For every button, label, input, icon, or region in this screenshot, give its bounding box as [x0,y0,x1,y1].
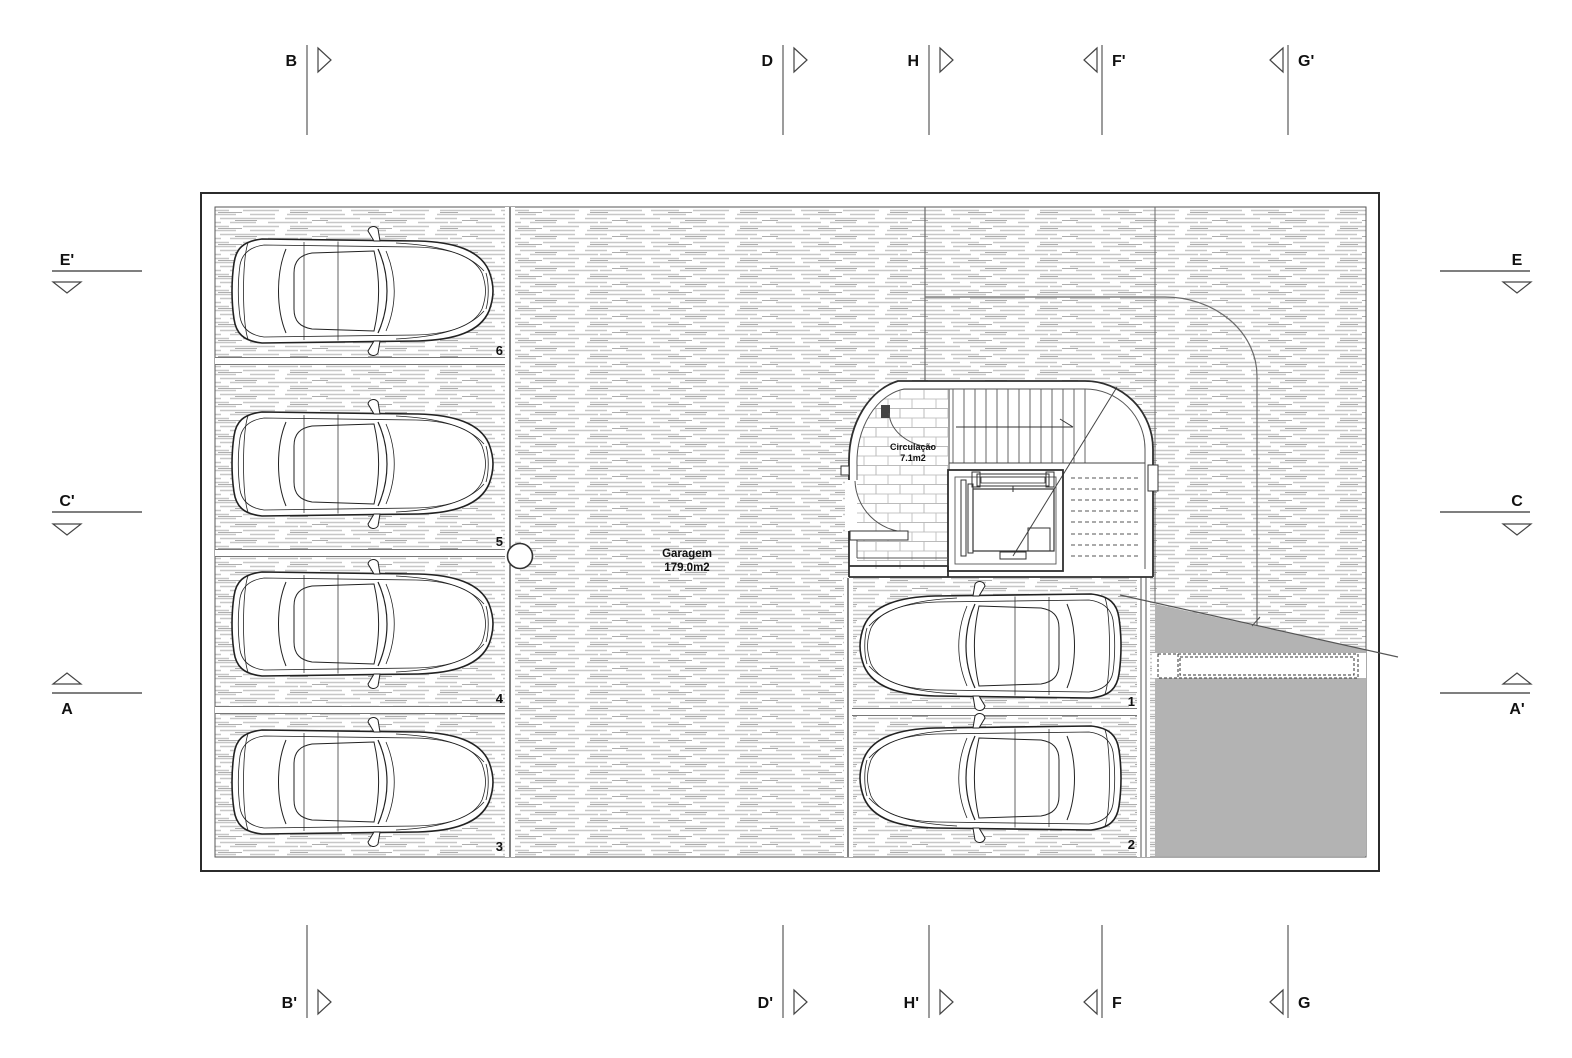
section-arrow-icon [318,990,331,1014]
pilaster [1148,465,1158,491]
section-marker: C' [52,493,142,535]
garage-label: Garagem [662,548,712,560]
car-top-view [860,714,1121,843]
stall-divider [215,706,510,714]
door-leaf [850,531,908,540]
circulation-tiles [857,389,948,569]
stall-boundary-band [1137,571,1150,857]
stall-divider [852,708,1137,716]
ramp-landing-fill [1155,678,1366,856]
section-marker: C [1440,493,1531,535]
car-top-view [860,582,1121,711]
section-arrow-icon [940,48,953,72]
section-label: D' [758,995,773,1012]
section-marker: F' [1084,45,1126,135]
floor-plan-canvas: Garagem 179.0m2 Circulação 7.1m2 6 5 4 3… [0,0,1572,1058]
section-arrow-icon [1084,990,1097,1014]
section-arrow-icon [1503,524,1531,535]
section-marker: A [52,673,142,718]
section-arrow-icon [1084,48,1097,72]
section-marker: D [761,45,807,135]
section-label: F' [1112,53,1126,70]
section-marker: B [285,45,331,135]
section-marker: D' [758,925,807,1018]
stall-divider [215,357,510,365]
door-opening [845,480,853,531]
section-arrow-icon [794,48,807,72]
section-arrow-icon [940,990,953,1014]
car-top-view [232,227,493,356]
section-label: B' [282,995,297,1012]
garage-area: 179.0m2 [664,562,709,574]
section-arrow-icon [794,990,807,1014]
floor-plan-svg: Garagem 179.0m2 Circulação 7.1m2 6 5 4 3… [0,0,1572,1058]
stair-core [841,381,1158,577]
section-label: A' [1509,701,1524,718]
section-markers-top: B D H F' G' [285,45,1314,135]
section-label: G [1298,995,1310,1012]
section-label: E [1512,252,1523,269]
circulation-label: Circulação [890,442,937,452]
section-label: C [1511,493,1523,510]
section-marker: A' [1440,673,1531,718]
stall-divider [215,549,510,557]
section-arrow-icon [1503,282,1531,293]
stall-number: 2 [1128,837,1135,852]
section-arrow-icon [53,673,81,684]
section-arrow-icon [1503,673,1531,684]
section-marker: B' [282,925,331,1018]
section-arrow-icon [1270,48,1283,72]
section-arrow-icon [1270,990,1283,1014]
circulation-area: 7.1m2 [900,453,926,463]
section-label: E' [60,252,74,269]
car-top-view [232,560,493,689]
section-arrow-icon [318,48,331,72]
section-label: B [285,53,297,70]
section-markers-right: E C A' [1440,252,1531,718]
car-top-view [232,718,493,847]
wall-notch [841,466,849,475]
section-marker: G [1270,925,1310,1018]
stall-number: 6 [496,343,503,358]
stall-number: 5 [496,534,503,549]
section-marker: G' [1270,45,1314,135]
section-markers-bottom: B' D' H' F G [282,925,1311,1018]
section-arrow-icon [53,524,81,535]
car-top-view [232,400,493,529]
section-markers-left: E' C' A [52,252,142,718]
section-marker: H' [904,925,953,1018]
section-label: A [61,701,73,718]
section-label: F [1112,995,1122,1012]
stall-number: 1 [1128,694,1135,709]
section-label: C' [59,493,74,510]
section-arrow-icon [53,282,81,293]
stall-number: 4 [496,691,504,706]
section-label: H' [904,995,919,1012]
section-label: D [761,53,773,70]
section-label: H [907,53,919,70]
section-label: G' [1298,53,1314,70]
stall-number: 3 [496,839,503,854]
section-marker: E' [52,252,142,293]
door-leaf [881,405,890,418]
section-marker: H [907,45,953,135]
section-marker: E [1440,252,1531,293]
section-marker: F [1084,925,1122,1018]
ramp-band [1152,653,1366,678]
column-circle [508,544,533,569]
